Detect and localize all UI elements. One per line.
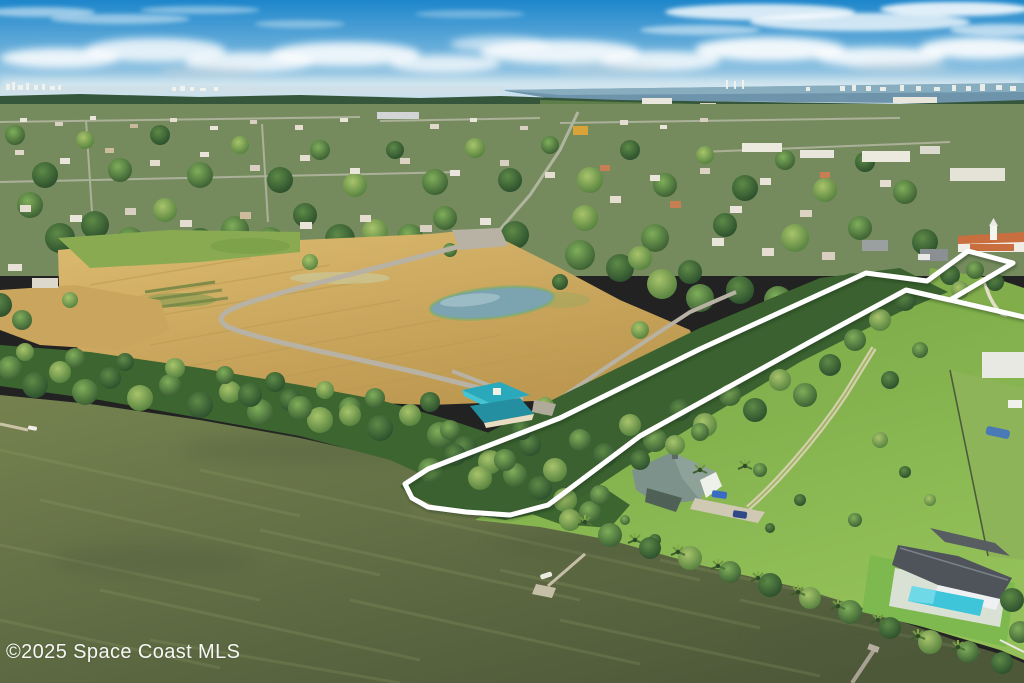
rv-trailer (1008, 400, 1022, 408)
aerial-photo: (function(){ var d=JSON.parse(document.g… (0, 0, 1024, 683)
apartment-building (377, 112, 419, 119)
mls-watermark: ©2025 Space Coast MLS (6, 641, 240, 664)
white-roof-house (982, 352, 1024, 378)
white-trailer (918, 254, 930, 260)
farm-house (32, 278, 58, 288)
horizon-haze-left (0, 86, 505, 95)
steeple (990, 226, 997, 240)
commercial-building (742, 143, 782, 152)
aerial-photo-canvas: (function(){ var d=JSON.parse(document.g… (0, 0, 1024, 683)
cupola (493, 388, 501, 395)
orange-tile-roof (970, 244, 1014, 251)
parking-area (452, 228, 508, 250)
gold-building (573, 126, 588, 135)
